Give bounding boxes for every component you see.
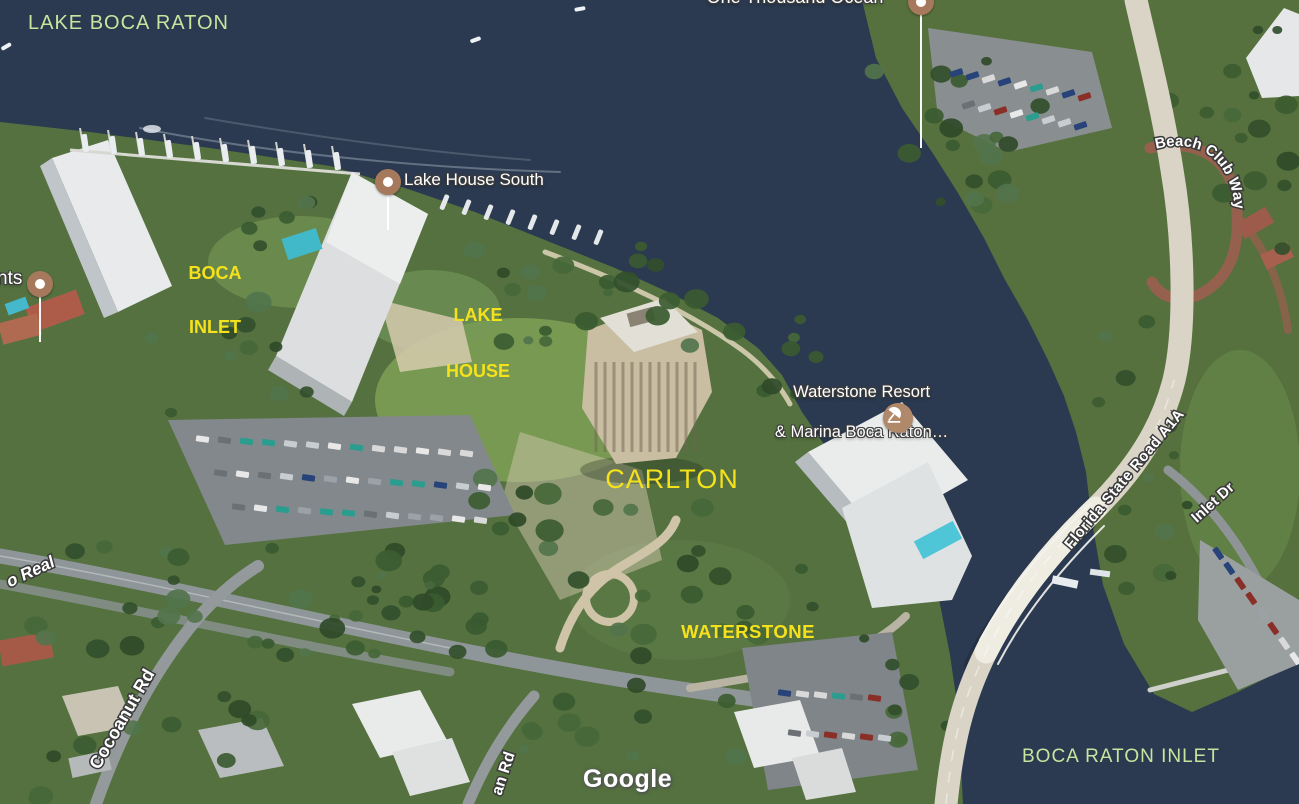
road-label-layer: Florida State Road A1A Beach Club Way Co… [0,0,1299,804]
placemark-label-waterstone[interactable]: WATERSTONE [681,621,815,643]
poi-label-line1: Waterstone Resort [793,383,930,401]
placemark-line1: LAKE [454,305,503,325]
poi-label-line2: & Marina Boca Raton… [775,423,948,441]
road-label-florida-a1a: Florida State Road A1A [1061,406,1188,553]
placemark-line2: INLET [189,317,241,337]
poi-label-one-thousand-ocean[interactable]: One Thousand Ocean [707,0,884,8]
lake-house-south-pin-icon[interactable] [375,169,401,195]
poi-label-lake-house-south[interactable]: Lake House South [404,170,544,190]
road-label-beach-club-way: Beach Club Way [1153,133,1248,211]
poi-label-waterstone-resort[interactable]: Waterstone Resort & Marina Boca Raton… [766,362,949,442]
placemark-line2: HOUSE [446,361,510,381]
poi-leader-line [39,296,41,342]
water-label-lake-boca-raton: LAKE BOCA RATON [28,12,229,35]
water-label-boca-raton-inlet: BOCA RATON INLET [1022,746,1220,768]
placemark-label-carlton[interactable]: CARLTON [605,464,739,495]
road-label-cocoanut-rd: Cocoanut Rd [85,666,158,773]
road-label-fragment-bottom: an Rd [489,750,519,798]
road-label-camino-real-fragment: o Real [5,551,56,592]
poi-leader-line [920,13,922,148]
beach-umbrella-icon[interactable] [883,403,913,433]
google-watermark: Google [583,765,672,794]
poi-leader-line [387,194,389,230]
satellite-map-view: Florida State Road A1A Beach Club Way Co… [0,0,1299,804]
placemark-line1: BOCA [189,263,242,283]
poi-label-left-edge-fragment[interactable]: nts [0,268,22,290]
road-label-inlet-dr: Inlet Dr [1188,479,1238,526]
left-edge-pin-icon[interactable] [27,271,53,297]
placemark-label-lake-house[interactable]: LAKE HOUSE [436,273,510,385]
placemark-label-boca-inlet[interactable]: BOCA INLET [178,233,241,341]
